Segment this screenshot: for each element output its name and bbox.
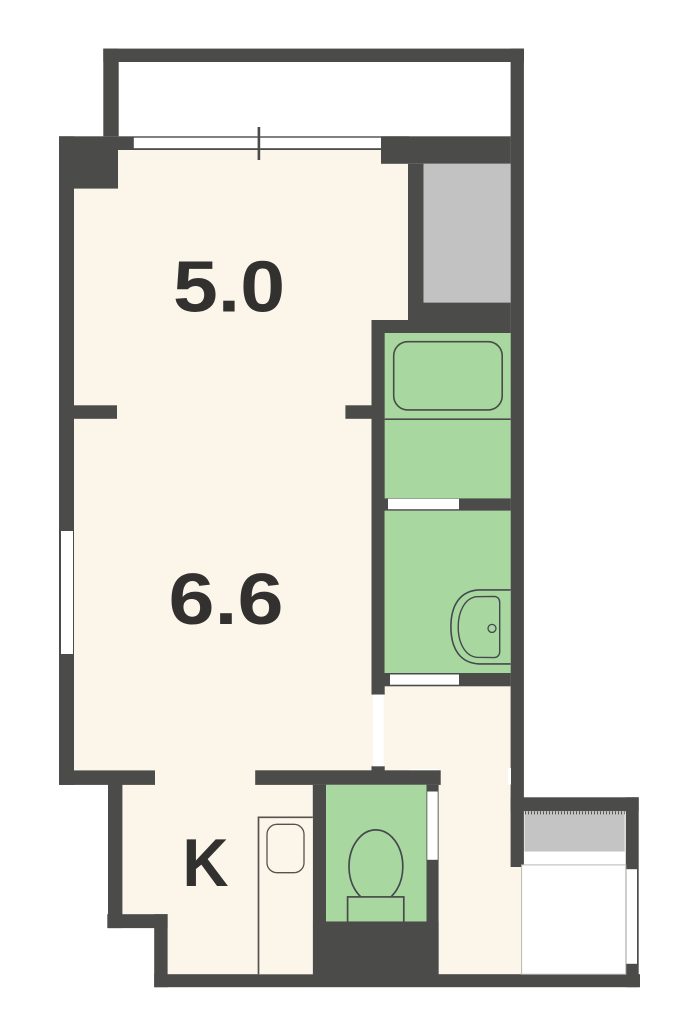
svg-text:5.0: 5.0 bbox=[173, 248, 285, 328]
svg-text:K: K bbox=[183, 825, 229, 901]
svg-text:6.6: 6.6 bbox=[169, 560, 284, 640]
